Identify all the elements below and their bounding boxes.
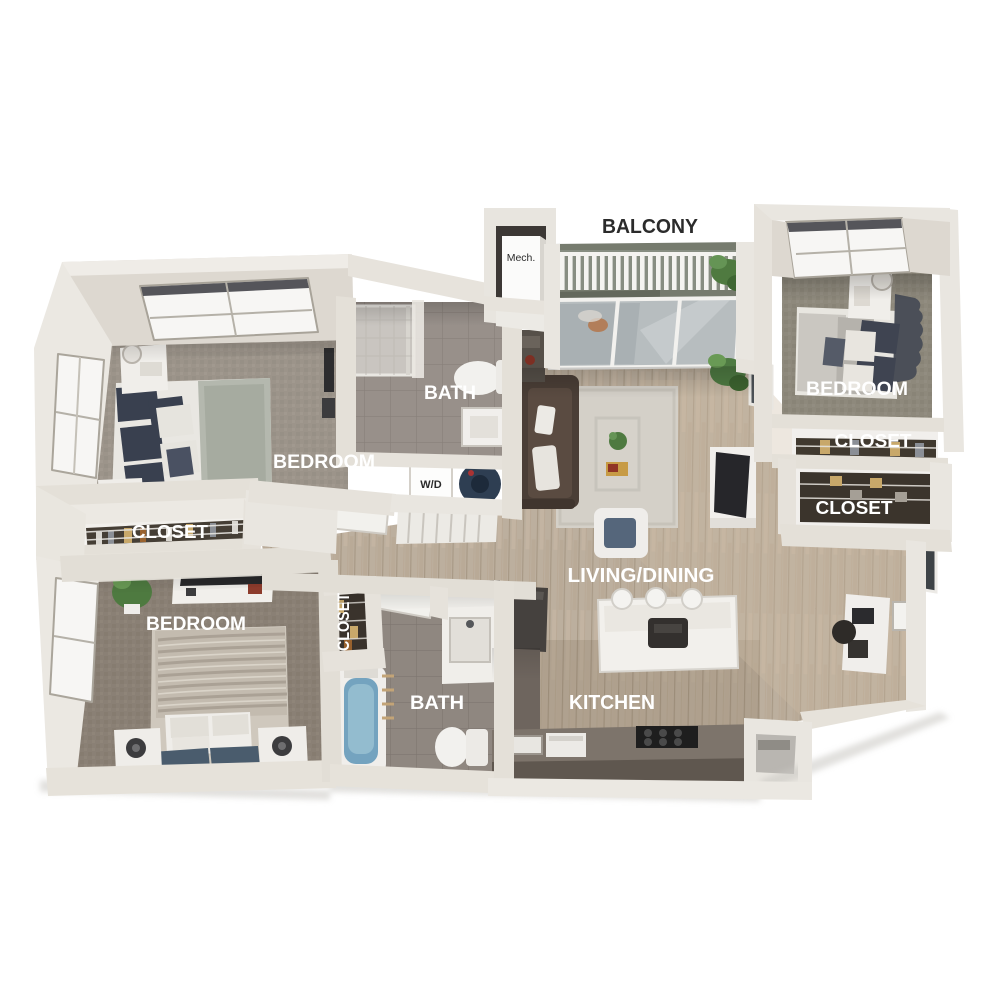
svg-text:BEDROOM: BEDROOM [806,378,908,400]
svg-text:CLOSET: CLOSET [816,498,893,518]
svg-text:W/D: W/D [420,479,441,491]
svg-text:BATH: BATH [410,692,464,714]
svg-text:BEDROOM: BEDROOM [146,613,246,635]
svg-text:CLOSET: CLOSET [835,431,912,451]
svg-text:BALCONY: BALCONY [602,216,699,238]
svg-text:Mech.: Mech. [507,252,536,264]
svg-text:LIVING/DINING: LIVING/DINING [568,565,715,587]
svg-text:KITCHEN: KITCHEN [569,692,655,714]
svg-text:BATH: BATH [424,383,476,404]
svg-text:CLOSET: CLOSET [132,522,208,542]
svg-text:BEDROOM: BEDROOM [273,451,375,473]
svg-text:CLOSET: CLOSET [335,593,353,651]
